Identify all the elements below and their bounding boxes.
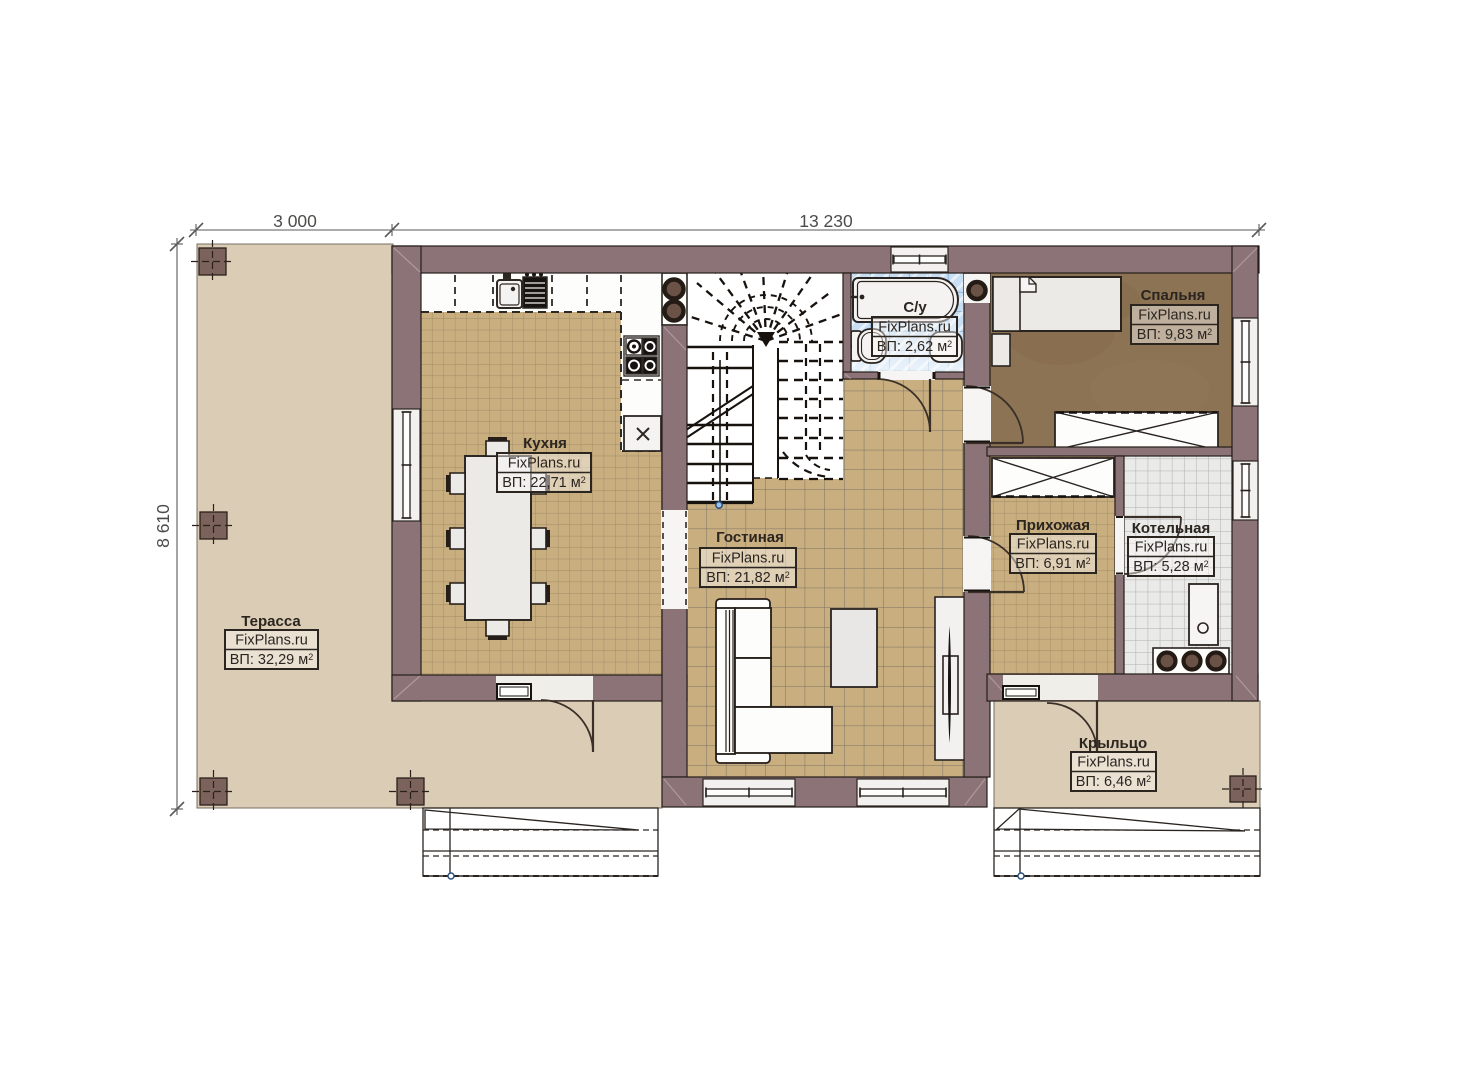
svg-text:ВП: 5,28 м2: ВП: 5,28 м2 [1133, 559, 1208, 575]
svg-text:FixPlans.ru: FixPlans.ru [1135, 540, 1208, 556]
svg-text:8 610: 8 610 [153, 504, 173, 548]
svg-text:Спальня: Спальня [1141, 287, 1206, 304]
svg-text:Кухня: Кухня [523, 435, 567, 452]
svg-text:FixPlans.ru: FixPlans.ru [712, 551, 785, 567]
svg-text:FixPlans.ru: FixPlans.ru [1077, 755, 1150, 771]
svg-text:13 230: 13 230 [799, 211, 853, 231]
svg-text:ВП: 32,29 м2: ВП: 32,29 м2 [230, 652, 313, 668]
svg-text:ВП: 2,62 м2: ВП: 2,62 м2 [877, 339, 952, 355]
svg-text:FixPlans.ru: FixPlans.ru [1017, 537, 1090, 553]
svg-text:С/у: С/у [903, 299, 927, 316]
svg-text:FixPlans.ru: FixPlans.ru [508, 456, 581, 472]
svg-text:FixPlans.ru: FixPlans.ru [1138, 308, 1211, 324]
svg-text:Прихожая: Прихожая [1016, 517, 1090, 534]
svg-text:Терасса: Терасса [241, 613, 301, 630]
svg-text:Крыльцо: Крыльцо [1079, 735, 1147, 752]
svg-text:ВП: 6,91 м2: ВП: 6,91 м2 [1015, 556, 1090, 572]
svg-text:ВП: 21,82 м2: ВП: 21,82 м2 [706, 570, 789, 586]
svg-text:ВП: 9,83 м2: ВП: 9,83 м2 [1137, 327, 1212, 343]
svg-text:3 000: 3 000 [273, 211, 317, 231]
svg-text:FixPlans.ru: FixPlans.ru [878, 320, 951, 336]
svg-text:ВП: 22,71 м2: ВП: 22,71 м2 [502, 475, 585, 491]
svg-text:FixPlans.ru: FixPlans.ru [235, 633, 308, 649]
svg-text:Котельная: Котельная [1132, 520, 1211, 537]
svg-text:Гостиная: Гостиная [716, 529, 784, 546]
svg-text:ВП: 6,46 м2: ВП: 6,46 м2 [1076, 774, 1151, 790]
